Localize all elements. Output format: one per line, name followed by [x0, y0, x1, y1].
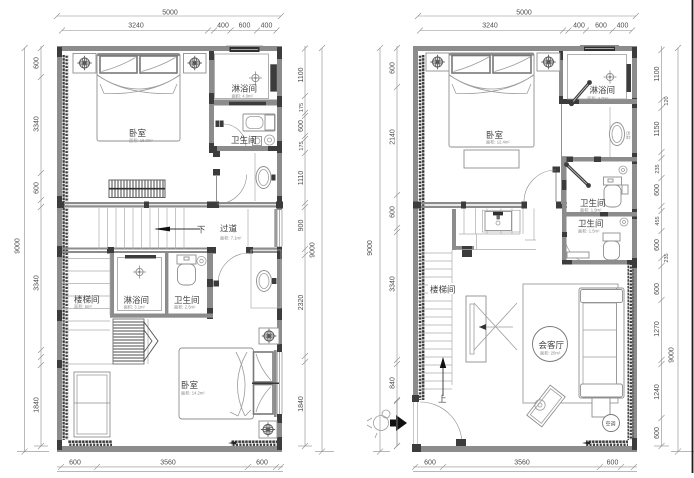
- svg-text:600: 600: [654, 239, 661, 251]
- svg-text:5000: 5000: [162, 10, 178, 17]
- svg-text:2140: 2140: [390, 129, 397, 145]
- svg-text:过道: 过道: [220, 224, 238, 234]
- svg-text:3340: 3340: [34, 275, 41, 291]
- svg-text:卧室: 卧室: [129, 128, 147, 138]
- svg-text:卫生间: 卫生间: [580, 198, 606, 208]
- svg-text:面积: 12.4m²: 面积: 12.4m²: [486, 139, 510, 146]
- svg-text:空调: 空调: [606, 421, 616, 428]
- svg-text:455: 455: [655, 216, 661, 225]
- svg-text:上: 上: [438, 394, 447, 404]
- svg-text:600: 600: [390, 62, 397, 74]
- svg-text:面积: 4.0m²: 面积: 4.0m²: [232, 93, 254, 100]
- svg-text:175: 175: [299, 103, 305, 112]
- svg-text:面积: 2.5m²: 面积: 2.5m²: [174, 304, 196, 311]
- svg-text:淋浴间: 淋浴间: [590, 85, 616, 95]
- svg-text:600: 600: [654, 184, 661, 196]
- svg-text:600: 600: [607, 460, 619, 467]
- svg-text:9000: 9000: [669, 347, 676, 363]
- svg-text:面积: 5m²: 面积: 5m²: [74, 303, 93, 310]
- svg-text:台盆: 台盆: [625, 131, 632, 140]
- svg-text:卫生间: 卫生间: [231, 135, 257, 145]
- svg-text:2320: 2320: [298, 295, 305, 311]
- svg-text:面积: 16.0m²: 面积: 16.0m²: [129, 137, 153, 144]
- svg-text:900: 900: [298, 220, 305, 232]
- svg-text:600: 600: [424, 460, 436, 467]
- svg-text:400: 400: [261, 23, 273, 30]
- svg-text:600: 600: [298, 120, 305, 132]
- svg-text:下: 下: [197, 225, 206, 235]
- svg-text:3560: 3560: [160, 460, 176, 467]
- svg-text:1110: 1110: [298, 171, 305, 186]
- svg-text:面积: 7.1m²: 面积: 7.1m²: [220, 235, 242, 242]
- svg-text:3560: 3560: [514, 460, 530, 467]
- svg-text:840: 840: [390, 377, 397, 389]
- svg-text:卧室: 卧室: [181, 380, 199, 390]
- svg-text:235: 235: [664, 253, 670, 262]
- svg-text:淋浴间: 淋浴间: [124, 295, 150, 305]
- svg-text:600: 600: [654, 427, 661, 439]
- svg-text:600: 600: [256, 460, 268, 467]
- svg-text:1840: 1840: [298, 396, 305, 412]
- svg-text:600: 600: [595, 23, 607, 30]
- svg-text:卧室: 卧室: [486, 130, 504, 140]
- svg-text:5000: 5000: [516, 10, 532, 17]
- svg-text:卫生间: 卫生间: [578, 219, 604, 229]
- svg-text:175: 175: [299, 141, 305, 150]
- svg-text:400: 400: [217, 23, 229, 30]
- svg-text:面积: 3.1m²: 面积: 3.1m²: [124, 304, 146, 311]
- svg-text:3240: 3240: [482, 23, 498, 30]
- svg-text:9000: 9000: [310, 242, 317, 258]
- svg-text:3240: 3240: [128, 23, 144, 30]
- svg-text:400: 400: [573, 23, 585, 30]
- svg-text:面积: 20m²: 面积: 20m²: [540, 350, 561, 357]
- svg-text:1100: 1100: [298, 67, 305, 82]
- svg-text:3340: 3340: [390, 276, 397, 292]
- svg-text:235: 235: [655, 164, 661, 173]
- svg-text:9000: 9000: [15, 238, 22, 254]
- svg-text:面积: 1.5m²: 面积: 1.5m²: [578, 228, 600, 235]
- svg-text:9000: 9000: [367, 240, 374, 256]
- svg-text:600: 600: [34, 182, 41, 194]
- svg-text:1270: 1270: [654, 321, 661, 337]
- svg-text:1150: 1150: [654, 121, 661, 136]
- svg-text:1840: 1840: [34, 397, 41, 413]
- svg-text:楼梯间: 楼梯间: [74, 295, 100, 305]
- svg-text:3340: 3340: [34, 116, 41, 132]
- svg-text:600: 600: [654, 283, 661, 295]
- svg-text:会客厅: 会客厅: [539, 340, 565, 350]
- svg-text:400: 400: [617, 23, 629, 30]
- svg-text:600: 600: [239, 23, 251, 30]
- svg-text:卫生间: 卫生间: [174, 295, 200, 305]
- svg-text:600: 600: [69, 460, 81, 467]
- svg-text:1100: 1100: [654, 66, 661, 81]
- svg-text:面积: 4.0m²: 面积: 4.0m²: [587, 95, 609, 102]
- svg-text:600: 600: [34, 57, 41, 69]
- svg-text:1240: 1240: [654, 384, 661, 400]
- svg-text:600: 600: [390, 206, 397, 218]
- svg-text:淋浴间: 淋浴间: [232, 84, 258, 94]
- svg-text:120: 120: [664, 96, 670, 105]
- svg-text:楼梯间: 楼梯间: [430, 285, 456, 295]
- svg-text:面积: 14.2m²: 面积: 14.2m²: [181, 390, 205, 397]
